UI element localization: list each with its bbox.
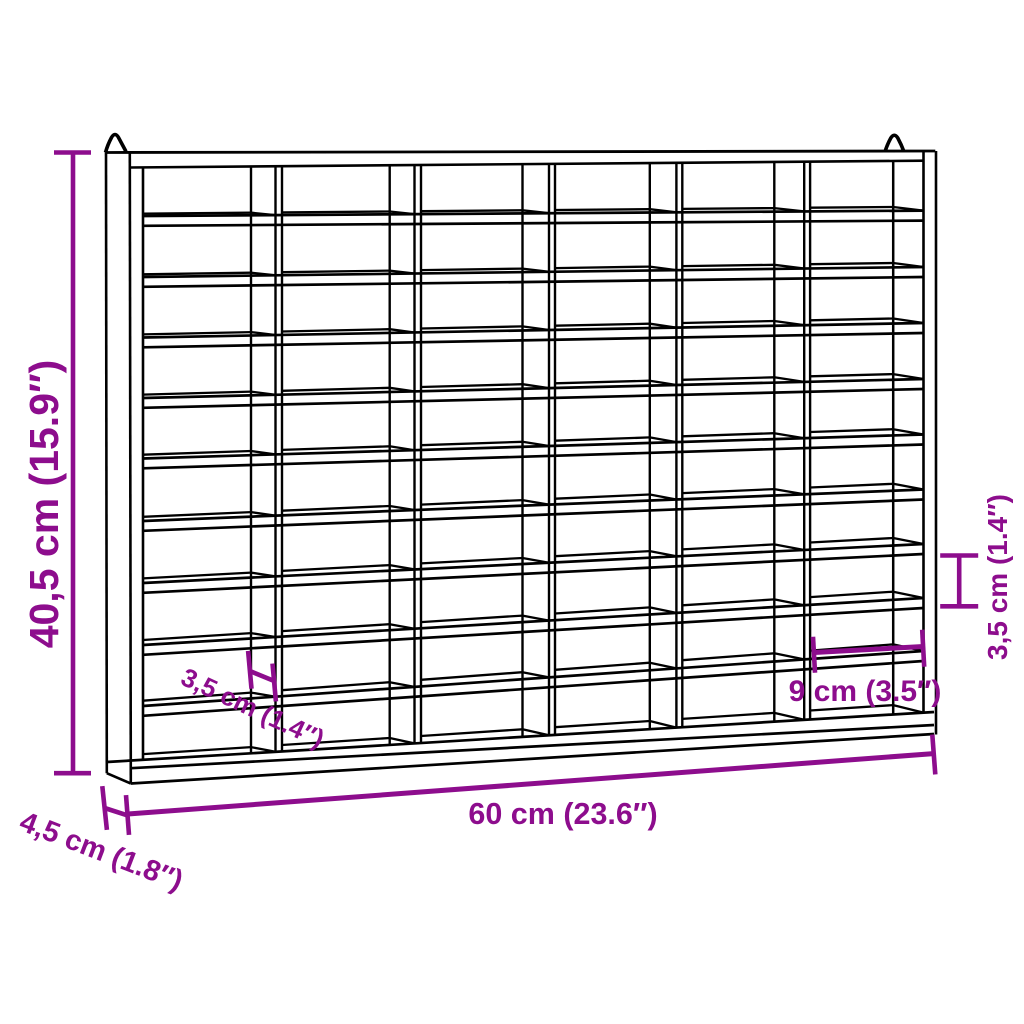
svg-text:40,5 cm (15.9″): 40,5 cm (15.9″) [21,360,67,649]
svg-text:3,5 cm (1.4″): 3,5 cm (1.4″) [982,494,1013,660]
svg-text:9 cm (3.5″): 9 cm (3.5″) [789,675,942,708]
svg-text:60 cm (23.6″): 60 cm (23.6″) [468,797,657,831]
